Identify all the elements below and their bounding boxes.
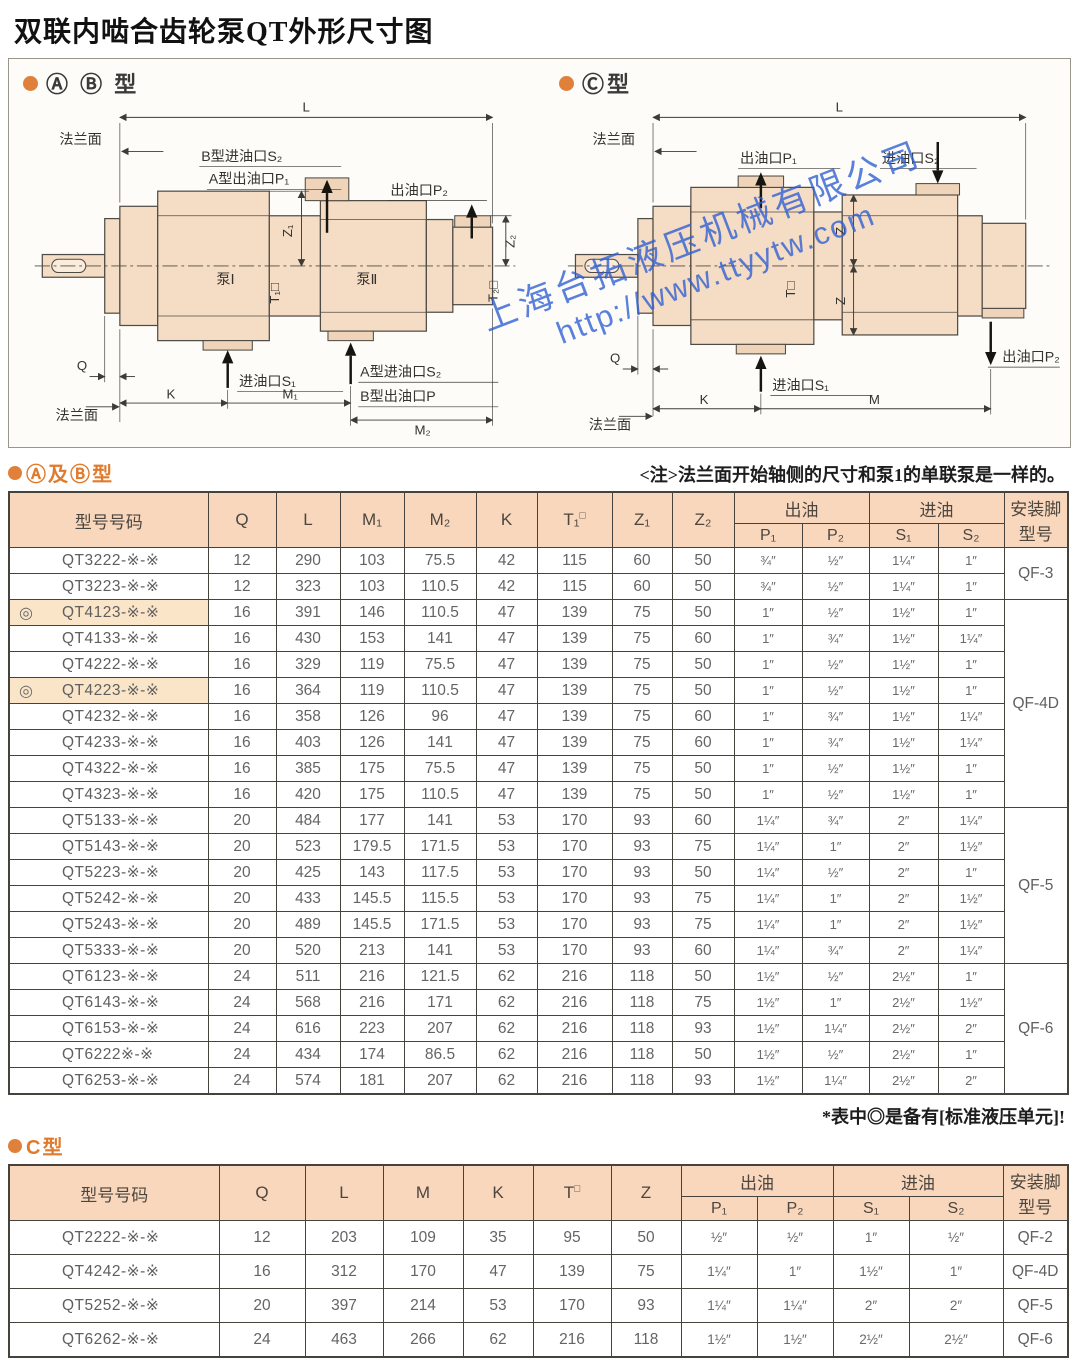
flow-arrow-up-icon xyxy=(466,204,477,217)
flange-face-top-label: 法兰面 xyxy=(592,132,635,148)
col-header-z1: Z₁ xyxy=(612,492,672,548)
value-cell: 174 xyxy=(340,1042,404,1068)
value-cell: 118 xyxy=(612,1016,672,1042)
flange-face-bottom-label: 法兰面 xyxy=(589,418,632,434)
value-cell: 24 xyxy=(208,1016,276,1042)
table-row: QT2222-※-※12203109359550½″½″1″½″QF-2 xyxy=(9,1221,1068,1255)
model-number: QT4133-※-※ xyxy=(62,630,159,647)
value-cell: 16 xyxy=(208,678,276,704)
value-cell: 141 xyxy=(404,938,476,964)
value-cell: 62 xyxy=(476,1068,537,1095)
mounting-foot-cell: QF-2 xyxy=(1003,1221,1068,1255)
value-cell: 1½″ xyxy=(734,1042,802,1068)
value-cell: 1″ xyxy=(802,886,869,912)
value-cell: 2½″ xyxy=(869,964,938,990)
table-row: ◎QT4123-※-※16391146110.54713975501″½″1½″… xyxy=(9,600,1068,626)
value-cell: 2½″ xyxy=(869,1042,938,1068)
value-cell: 24 xyxy=(208,1068,276,1095)
col-header-q: Q xyxy=(208,492,276,548)
flange-face-top-label: 法兰面 xyxy=(59,132,102,148)
value-cell: 139 xyxy=(533,1255,611,1289)
value-cell: 50 xyxy=(672,1042,734,1068)
value-cell: 216 xyxy=(533,1323,611,1358)
value-cell: 24 xyxy=(208,1042,276,1068)
value-cell: 216 xyxy=(537,964,612,990)
value-cell: ½″ xyxy=(802,860,869,886)
value-cell: 213 xyxy=(340,938,404,964)
value-cell: 96 xyxy=(404,704,476,730)
value-cell: 1¼″ xyxy=(734,834,802,860)
table-row: QT4242-※-※1631217047139751¼″1″1½″1″QF-4D xyxy=(9,1255,1068,1289)
value-cell: ½″ xyxy=(802,756,869,782)
value-cell: 75 xyxy=(672,834,734,860)
value-cell: 1″ xyxy=(938,1042,1004,1068)
col-header-model: 型号号码 xyxy=(9,1165,219,1221)
value-cell: 403 xyxy=(276,730,340,756)
mounting-foot-cell: QF-5 xyxy=(1004,808,1068,964)
model-number: QT4222-※-※ xyxy=(62,656,159,673)
col-header-foot: 安装脚型号 xyxy=(1004,492,1068,548)
table-row: QT5133-※-※204841771415317093601¼″¾″2″1¼″… xyxy=(9,808,1068,834)
table-row: QT6143-※-※2456821617162216118751½″1″2½″1… xyxy=(9,990,1068,1016)
value-cell: 425 xyxy=(276,860,340,886)
value-cell: 216 xyxy=(340,990,404,1016)
value-cell: 93 xyxy=(611,1289,681,1323)
col-header-z2: Z₂ xyxy=(672,492,734,548)
standard-unit-mark: ◎ xyxy=(19,681,33,701)
dim-z2-label: Z₂ xyxy=(502,235,517,248)
mounting-foot-cell: QF-6 xyxy=(1003,1323,1068,1358)
value-cell: 60 xyxy=(672,938,734,964)
value-cell: 75 xyxy=(672,990,734,1016)
value-cell: 203 xyxy=(305,1221,383,1255)
model-cell: QT5223-※-※ xyxy=(9,860,208,886)
table-row: QT5243-※-※20489145.5171.55317093751¼″1″2… xyxy=(9,912,1068,938)
value-cell: 2½″ xyxy=(869,1016,938,1042)
model-number: QT6253-※-※ xyxy=(62,1072,159,1089)
value-cell: 12 xyxy=(219,1221,305,1255)
value-cell: 1½″ xyxy=(734,1068,802,1095)
value-cell: 126 xyxy=(340,704,404,730)
value-cell: 42 xyxy=(476,548,537,574)
value-cell: 1¼″ xyxy=(802,1016,869,1042)
value-cell: 145.5 xyxy=(340,886,404,912)
value-cell: 53 xyxy=(476,886,537,912)
pump2-label: 泵Ⅱ xyxy=(356,272,377,288)
value-cell: 1½″ xyxy=(869,678,938,704)
value-cell: 574 xyxy=(276,1068,340,1095)
value-cell: 16 xyxy=(208,600,276,626)
ab-drawing-title: Ⓐ Ⓑ 型 xyxy=(23,67,139,99)
value-cell: 1¼″ xyxy=(869,574,938,600)
value-cell: 75 xyxy=(612,730,672,756)
value-cell: 177 xyxy=(340,808,404,834)
value-cell: 1¼″ xyxy=(938,938,1004,964)
value-cell: 179.5 xyxy=(340,834,404,860)
value-cell: 1″ xyxy=(938,600,1004,626)
value-cell: 47 xyxy=(476,782,537,808)
value-cell: 2″ xyxy=(869,834,938,860)
model-cell: QT3223-※-※ xyxy=(9,574,208,600)
model-number: QT4232-※-※ xyxy=(62,708,159,725)
col-group-inlet: 进油 xyxy=(833,1165,1003,1197)
value-cell: ½″ xyxy=(802,1042,869,1068)
c-section-row: C型 xyxy=(8,1131,1069,1160)
value-cell: 420 xyxy=(276,782,340,808)
value-cell: 1″ xyxy=(734,730,802,756)
model-cell: QT2222-※-※ xyxy=(9,1221,219,1255)
value-cell: 1″ xyxy=(757,1255,833,1289)
table-row: QT5242-※-※20433145.5115.55317093751¼″1″2… xyxy=(9,886,1068,912)
ab-type-drawing: L 法兰面 B型进油口S₂ A型出油口P₁ 出油口P₂ Z₁ T₁□ xyxy=(13,89,537,439)
value-cell: 2½″ xyxy=(869,990,938,1016)
table-row: QT4133-※-※164301531414713975601″¾″1½″1¼″ xyxy=(9,626,1068,652)
col-header-l: L xyxy=(305,1165,383,1221)
value-cell: 47 xyxy=(476,704,537,730)
value-cell: 16 xyxy=(208,704,276,730)
model-number: QT4322-※-※ xyxy=(62,760,159,777)
value-cell: 1½″ xyxy=(833,1255,909,1289)
orange-bullet-icon xyxy=(8,1139,22,1153)
value-cell: 1¼″ xyxy=(802,1068,869,1095)
value-cell: 50 xyxy=(672,964,734,990)
value-cell: 1¼″ xyxy=(938,704,1004,730)
model-number: QT5223-※-※ xyxy=(62,864,159,881)
value-cell: 139 xyxy=(537,626,612,652)
port-p1-label: 出油口P₁ xyxy=(740,151,797,167)
value-cell: 364 xyxy=(276,678,340,704)
value-cell: 47 xyxy=(476,756,537,782)
value-cell: 50 xyxy=(672,600,734,626)
dim-m-label: M xyxy=(869,392,880,407)
value-cell: 170 xyxy=(383,1255,463,1289)
footnote-text: *表中◎是备有[标准液压单元]! xyxy=(822,1107,1065,1127)
value-cell: 1″ xyxy=(734,704,802,730)
value-cell: 75 xyxy=(612,678,672,704)
value-cell: 1¼″ xyxy=(938,808,1004,834)
value-cell: 511 xyxy=(276,964,340,990)
value-cell: 118 xyxy=(612,1068,672,1095)
value-cell: ½″ xyxy=(802,652,869,678)
model-cell: QT6262-※-※ xyxy=(9,1323,219,1358)
catalog-page: 双联内啮合齿轮泵QT外形尺寸图 Ⓐ Ⓑ 型 xyxy=(0,0,1077,1368)
value-cell: 170 xyxy=(537,834,612,860)
model-number: QT6143-※-※ xyxy=(62,994,159,1011)
table-row: QT6123-※-※24511216121.562216118501½″½″2½… xyxy=(9,964,1068,990)
value-cell: 1½″ xyxy=(938,886,1004,912)
value-cell: 62 xyxy=(476,1042,537,1068)
ab-section-header: Ⓐ及Ⓑ型 xyxy=(8,458,114,487)
dim-t1-label: T₁□ xyxy=(267,283,282,304)
value-cell: 312 xyxy=(305,1255,383,1289)
table-row: QT4232-※-※16358126964713975601″¾″1½″1¼″ xyxy=(9,704,1068,730)
value-cell: 119 xyxy=(340,678,404,704)
value-cell: 1″ xyxy=(938,652,1004,678)
value-cell: 145.5 xyxy=(340,912,404,938)
value-cell: 1″ xyxy=(938,860,1004,886)
value-cell: 60 xyxy=(672,730,734,756)
value-cell: 20 xyxy=(219,1289,305,1323)
value-cell: 119 xyxy=(340,652,404,678)
model-cell: QT4242-※-※ xyxy=(9,1255,219,1289)
value-cell: 50 xyxy=(672,678,734,704)
value-cell: 75 xyxy=(611,1255,681,1289)
value-cell: 1½″ xyxy=(734,1016,802,1042)
dim-m1-label: M₁ xyxy=(282,386,298,401)
value-cell: 24 xyxy=(208,964,276,990)
value-cell: 50 xyxy=(672,652,734,678)
value-cell: 358 xyxy=(276,704,340,730)
value-cell: 16 xyxy=(208,626,276,652)
model-number: QT5252-※-※ xyxy=(62,1297,159,1314)
col-header-k: K xyxy=(476,492,537,548)
value-cell: 434 xyxy=(276,1042,340,1068)
value-cell: 53 xyxy=(476,860,537,886)
model-cell: QT5243-※-※ xyxy=(9,912,208,938)
flange-face-bottom-label: 法兰面 xyxy=(56,408,99,424)
model-number: QT5242-※-※ xyxy=(62,890,159,907)
value-cell: 75.5 xyxy=(404,652,476,678)
dim-m2-label: M₂ xyxy=(414,422,430,437)
value-cell: 216 xyxy=(537,990,612,1016)
value-cell: 115.5 xyxy=(404,886,476,912)
value-cell: 118 xyxy=(612,990,672,1016)
value-cell: 53 xyxy=(476,938,537,964)
value-cell: 139 xyxy=(537,600,612,626)
model-number: QT2222-※-※ xyxy=(62,1229,159,1246)
value-cell: 216 xyxy=(537,1016,612,1042)
value-cell: 2½″ xyxy=(833,1323,909,1358)
value-cell: 62 xyxy=(476,990,537,1016)
col-header-s1: S₁ xyxy=(869,524,938,548)
table-row: QT6222※-※2443417486.562216118501½″½″2½″1… xyxy=(9,1042,1068,1068)
model-number: QT5133-※-※ xyxy=(62,812,159,829)
value-cell: ¾″ xyxy=(734,548,802,574)
value-cell: 170 xyxy=(537,886,612,912)
value-cell: 139 xyxy=(537,756,612,782)
dim-t-label: T□ xyxy=(783,281,798,297)
value-cell: 16 xyxy=(208,730,276,756)
model-number: QT4223-※-※ xyxy=(62,682,159,699)
col-header-z: Z xyxy=(611,1165,681,1221)
value-cell: 47 xyxy=(476,652,537,678)
dim-k-label: K xyxy=(700,392,709,407)
model-cell: QT5133-※-※ xyxy=(9,808,208,834)
table-row: QT5223-※-※20425143117.55317093501¼″½″2″1… xyxy=(9,860,1068,886)
value-cell: 47 xyxy=(476,626,537,652)
value-cell: 1½″ xyxy=(734,964,802,990)
mounting-foot-cell: QF-4D xyxy=(1003,1255,1068,1289)
value-cell: 1½″ xyxy=(734,990,802,1016)
port-a-outlet-label: A型出油口P₁ xyxy=(209,172,290,188)
value-cell: 175 xyxy=(340,756,404,782)
col-group-outlet: 出油 xyxy=(681,1165,833,1197)
value-cell: 12 xyxy=(208,548,276,574)
value-cell: ½″ xyxy=(802,964,869,990)
value-cell: 139 xyxy=(537,678,612,704)
value-cell: 1¼″ xyxy=(757,1289,833,1323)
value-cell: 139 xyxy=(537,704,612,730)
dim-l-label: L xyxy=(303,100,310,115)
value-cell: 50 xyxy=(611,1221,681,1255)
value-cell: 75 xyxy=(612,704,672,730)
value-cell: 1¼″ xyxy=(734,808,802,834)
value-cell: 181 xyxy=(340,1068,404,1095)
model-cell: QT4323-※-※ xyxy=(9,782,208,808)
value-cell: 329 xyxy=(276,652,340,678)
value-cell: 1″ xyxy=(802,912,869,938)
table-row: QT6262-※-※24463266622161181½″1½″2½″2½″QF… xyxy=(9,1323,1068,1358)
value-cell: 1¼″ xyxy=(938,730,1004,756)
value-cell: 430 xyxy=(276,626,340,652)
value-cell: 12 xyxy=(208,574,276,600)
model-number: QT5143-※-※ xyxy=(62,838,159,855)
flow-arrow-up-icon xyxy=(222,350,233,363)
value-cell: 20 xyxy=(208,938,276,964)
col-header-t1: T₁□ xyxy=(537,492,612,548)
value-cell: 1½″ xyxy=(869,652,938,678)
value-cell: 1″ xyxy=(802,834,869,860)
orange-bullet-icon xyxy=(8,466,22,480)
value-cell: 290 xyxy=(276,548,340,574)
col-group-inlet: 进油 xyxy=(869,492,1004,524)
value-cell: 53 xyxy=(476,912,537,938)
table-row: QT3222-※-※1229010375.5421156050¾″½″1¼″1″… xyxy=(9,548,1068,574)
value-cell: 50 xyxy=(672,860,734,886)
value-cell: 2″ xyxy=(869,886,938,912)
value-cell: 1¼″ xyxy=(734,886,802,912)
value-cell: 520 xyxy=(276,938,340,964)
value-cell: 1″ xyxy=(802,990,869,1016)
value-cell: 47 xyxy=(476,678,537,704)
value-cell: 62 xyxy=(476,964,537,990)
c-section-header: C型 xyxy=(8,1131,64,1160)
mounting-foot-cell: QF-3 xyxy=(1004,548,1068,600)
col-header-foot: 安装脚型号 xyxy=(1003,1165,1068,1221)
value-cell: 391 xyxy=(276,600,340,626)
model-cell: QT6143-※-※ xyxy=(9,990,208,1016)
port-b-outlet-label: B型出油口P xyxy=(360,389,436,405)
mounting-foot-cell: QF-4D xyxy=(1004,600,1068,808)
orange-bullet-icon xyxy=(559,76,574,91)
value-cell: ½″ xyxy=(681,1221,757,1255)
value-cell: 171 xyxy=(404,990,476,1016)
c-drawing-area: Ⓒ型 xyxy=(545,59,1071,447)
value-cell: 20 xyxy=(208,886,276,912)
value-cell: 75 xyxy=(612,600,672,626)
value-cell: 1½″ xyxy=(869,704,938,730)
value-cell: 1½″ xyxy=(869,782,938,808)
value-cell: 47 xyxy=(476,730,537,756)
model-cell: QT4133-※-※ xyxy=(9,626,208,652)
value-cell: 1¼″ xyxy=(938,626,1004,652)
value-cell: 216 xyxy=(537,1042,612,1068)
value-cell: 170 xyxy=(537,938,612,964)
port-p2-label: 出油口P₂ xyxy=(1002,349,1059,365)
value-cell: 60 xyxy=(672,808,734,834)
value-cell: ¾″ xyxy=(802,938,869,964)
model-cell: QT5252-※-※ xyxy=(9,1289,219,1323)
table-row: QT5143-※-※20523179.5171.55317093751¼″1″2… xyxy=(9,834,1068,860)
value-cell: 2½″ xyxy=(909,1323,1003,1358)
col-header-model: 型号号码 xyxy=(9,492,208,548)
value-cell: 2″ xyxy=(869,860,938,886)
value-cell: 50 xyxy=(672,574,734,600)
model-cell: ◎QT4223-※-※ xyxy=(9,678,208,704)
value-cell: 93 xyxy=(612,886,672,912)
flow-arrow-down-icon xyxy=(932,170,943,183)
value-cell: 110.5 xyxy=(404,600,476,626)
value-cell: ¾″ xyxy=(802,808,869,834)
value-cell: 1¼″ xyxy=(734,912,802,938)
model-cell: QT6153-※-※ xyxy=(9,1016,208,1042)
value-cell: 75.5 xyxy=(404,548,476,574)
value-cell: 1½″ xyxy=(938,912,1004,938)
value-cell: 484 xyxy=(276,808,340,834)
value-cell: 93 xyxy=(612,860,672,886)
value-cell: 126 xyxy=(340,730,404,756)
value-cell: 62 xyxy=(463,1323,533,1358)
value-cell: 2½″ xyxy=(869,1068,938,1095)
model-cell: QT6253-※-※ xyxy=(9,1068,208,1095)
flow-arrow-up-icon xyxy=(345,343,356,356)
value-cell: 115 xyxy=(537,574,612,600)
value-cell: 216 xyxy=(537,1068,612,1095)
col-header-s2: S₂ xyxy=(909,1197,1003,1221)
value-cell: 266 xyxy=(383,1323,463,1358)
diagram-panel: Ⓐ Ⓑ 型 xyxy=(8,58,1071,448)
value-cell: 1″ xyxy=(734,652,802,678)
value-cell: 1¼″ xyxy=(681,1255,757,1289)
value-cell: 86.5 xyxy=(404,1042,476,1068)
model-cell: QT5143-※-※ xyxy=(9,834,208,860)
model-cell: QT4222-※-※ xyxy=(9,652,208,678)
ab-section-title: Ⓐ及Ⓑ型 xyxy=(26,458,114,487)
value-cell: 115 xyxy=(537,548,612,574)
value-cell: 1¼″ xyxy=(734,938,802,964)
table-row: ◎QT4223-※-※16364119110.54713975501″½″1½″… xyxy=(9,678,1068,704)
c-spec-table: 型号号码 Q L M K T□ Z 出油 进油 安装脚型号 P₁ P₂ S₁ S… xyxy=(8,1164,1069,1358)
model-cell: QT6123-※-※ xyxy=(9,964,208,990)
ab-drawing-area: Ⓐ Ⓑ 型 xyxy=(9,59,545,447)
value-cell: 20 xyxy=(208,834,276,860)
model-number: QT3223-※-※ xyxy=(62,578,159,595)
table-row: QT4323-※-※16420175110.54713975501″½″1½″1… xyxy=(9,782,1068,808)
value-cell: 568 xyxy=(276,990,340,1016)
value-cell: ½″ xyxy=(802,782,869,808)
value-cell: 20 xyxy=(208,808,276,834)
col-header-p1: P₁ xyxy=(681,1197,757,1221)
value-cell: 1″ xyxy=(734,756,802,782)
flow-arrow-down-icon xyxy=(985,352,996,365)
ab-drawing-title-text: Ⓐ Ⓑ 型 xyxy=(46,67,139,99)
table-row: QT6253-※-※2457418120762216118931½″1¼″2½″… xyxy=(9,1068,1068,1095)
value-cell: 397 xyxy=(305,1289,383,1323)
value-cell: 1¼″ xyxy=(734,860,802,886)
value-cell: 139 xyxy=(537,782,612,808)
value-cell: ¾″ xyxy=(734,574,802,600)
value-cell: 60 xyxy=(612,548,672,574)
value-cell: 35 xyxy=(463,1221,533,1255)
value-cell: 170 xyxy=(533,1289,611,1323)
model-number: QT6123-※-※ xyxy=(62,968,159,985)
port-b-inlet-label: B型进油口S₂ xyxy=(201,149,282,165)
value-cell: 141 xyxy=(404,808,476,834)
value-cell: 53 xyxy=(476,808,537,834)
value-cell: 223 xyxy=(340,1016,404,1042)
value-cell: 47 xyxy=(476,600,537,626)
value-cell: 1½″ xyxy=(869,600,938,626)
